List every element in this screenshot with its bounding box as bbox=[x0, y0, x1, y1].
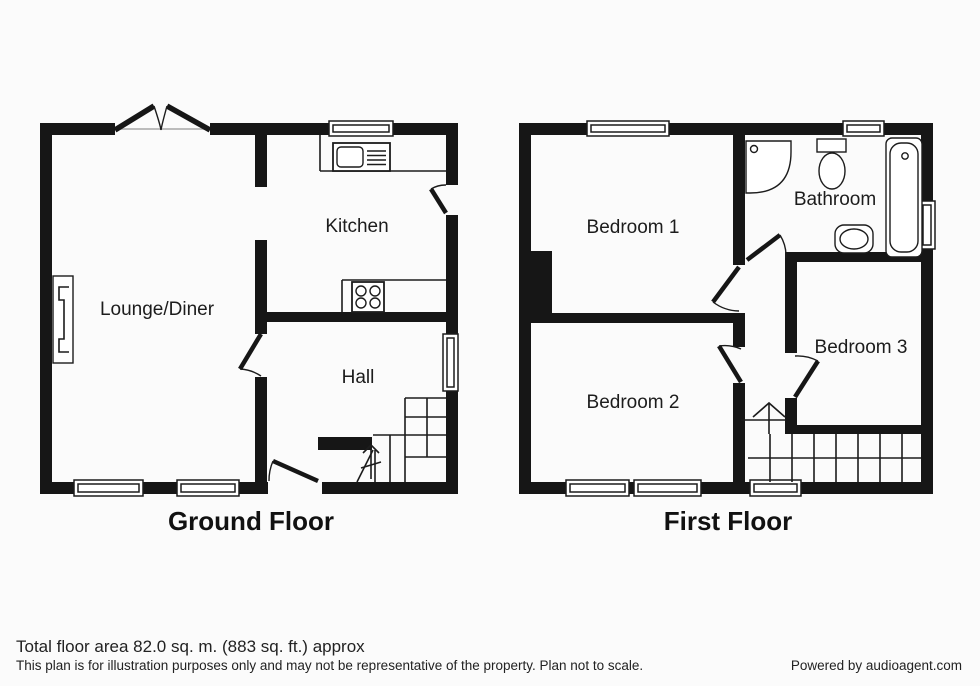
powered-by-credit: Powered by audioagent.com bbox=[791, 658, 962, 673]
chimney-breast-symbol bbox=[519, 251, 552, 313]
window-symbol bbox=[443, 334, 458, 391]
door-symbol-bedroom-2 bbox=[719, 346, 741, 382]
window-symbol bbox=[74, 480, 143, 496]
disclaimer-text: This plan is for illustration purposes o… bbox=[16, 658, 643, 673]
door-symbol-lounge bbox=[240, 334, 261, 376]
hob-symbol bbox=[352, 282, 384, 312]
french-doors-symbol bbox=[115, 106, 210, 130]
shower-symbol bbox=[746, 141, 791, 193]
room-label-bathroom: Bathroom bbox=[794, 189, 876, 210]
door-symbol-bedroom-1 bbox=[713, 267, 739, 311]
window-symbol bbox=[177, 480, 239, 496]
total-floor-area-text: Total floor area 82.0 sq. m. (883 sq. ft… bbox=[16, 637, 365, 657]
floorplan-page: { "page": { "type": "estate-agent-floorp… bbox=[0, 0, 980, 686]
window-symbol bbox=[329, 121, 393, 136]
bath-symbol bbox=[886, 138, 922, 257]
room-label-bedroom-2: Bedroom 2 bbox=[587, 392, 680, 413]
first-floor-title: First Floor bbox=[664, 506, 793, 536]
room-label-lounge-diner: Lounge/Diner bbox=[100, 299, 215, 320]
room-label-kitchen: Kitchen bbox=[325, 216, 388, 237]
window-symbol bbox=[634, 480, 701, 496]
first-floor-plan: Bedroom 1 Bathroom Bedroom 2 Bedroom 3 F… bbox=[519, 121, 935, 536]
door-symbol-front bbox=[269, 461, 318, 481]
door-symbol-bathroom bbox=[747, 235, 786, 260]
kitchen-sink-symbol bbox=[333, 143, 390, 171]
window-symbol bbox=[750, 480, 801, 496]
room-label-bedroom-3: Bedroom 3 bbox=[815, 337, 908, 358]
ground-floor-title: Ground Floor bbox=[168, 506, 334, 536]
floorplan-drawing: Lounge/Diner Kitchen Hall Ground Floor bbox=[0, 0, 980, 620]
door-symbol-kitchen-side bbox=[431, 185, 446, 213]
fireplace-symbol bbox=[53, 276, 73, 363]
window-symbol bbox=[587, 121, 669, 136]
room-label-bedroom-1: Bedroom 1 bbox=[587, 217, 680, 238]
window-symbol bbox=[843, 121, 884, 136]
door-symbol-bedroom-3 bbox=[795, 356, 818, 397]
ground-floor-plan: Lounge/Diner Kitchen Hall Ground Floor bbox=[40, 106, 458, 536]
basin-symbol bbox=[835, 225, 873, 253]
room-label-hall: Hall bbox=[342, 367, 375, 388]
stair-direction-arrow bbox=[361, 445, 381, 479]
window-symbol bbox=[566, 480, 629, 496]
stairs-symbol bbox=[741, 403, 921, 482]
toilet-symbol bbox=[817, 139, 846, 189]
